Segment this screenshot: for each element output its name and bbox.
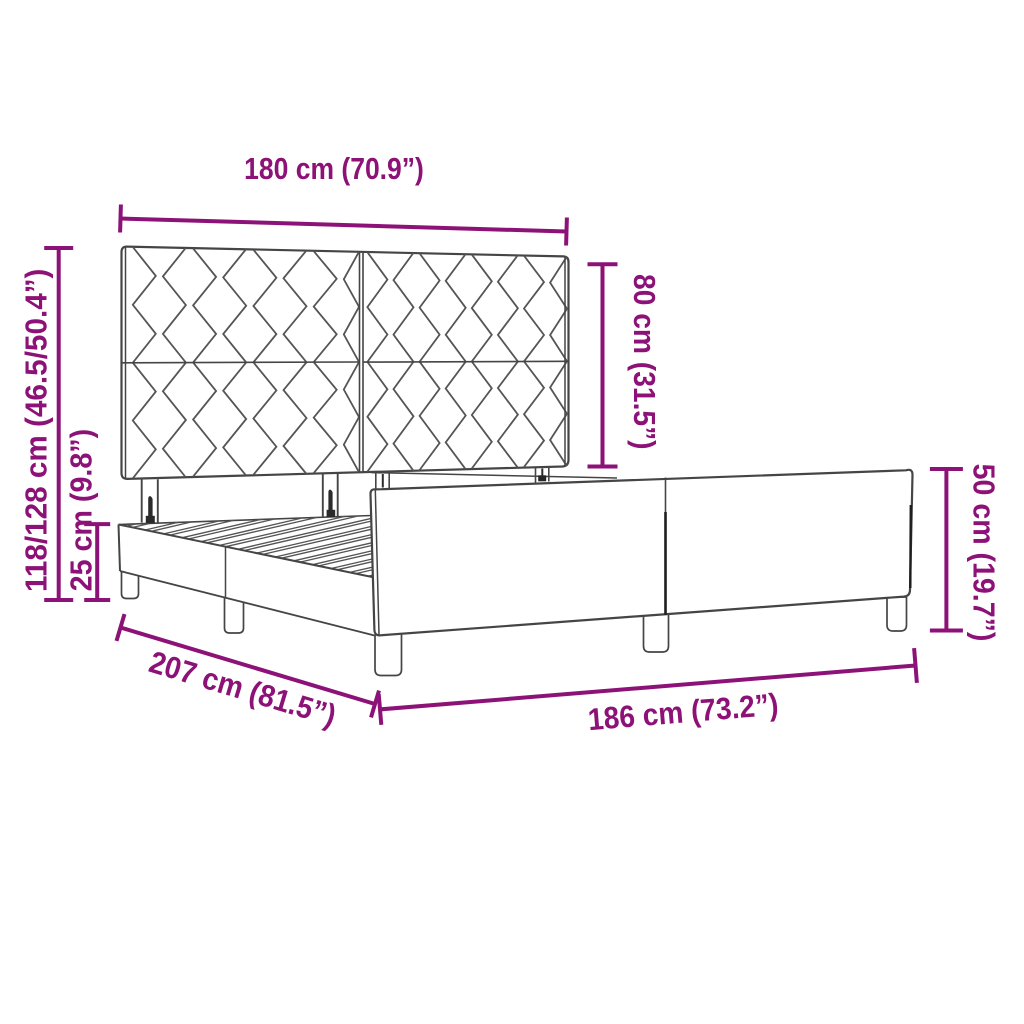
svg-text:118/128 cm (46.5/50.4”): 118/128 cm (46.5/50.4”)	[20, 269, 54, 592]
svg-text:25 cm (9.8”): 25 cm (9.8”)	[64, 429, 98, 592]
svg-text:180 cm (70.9”): 180 cm (70.9”)	[244, 152, 424, 186]
svg-text:80 cm (31.5”): 80 cm (31.5”)	[626, 274, 661, 450]
svg-text:50 cm (19.7”): 50 cm (19.7”)	[966, 464, 1000, 642]
